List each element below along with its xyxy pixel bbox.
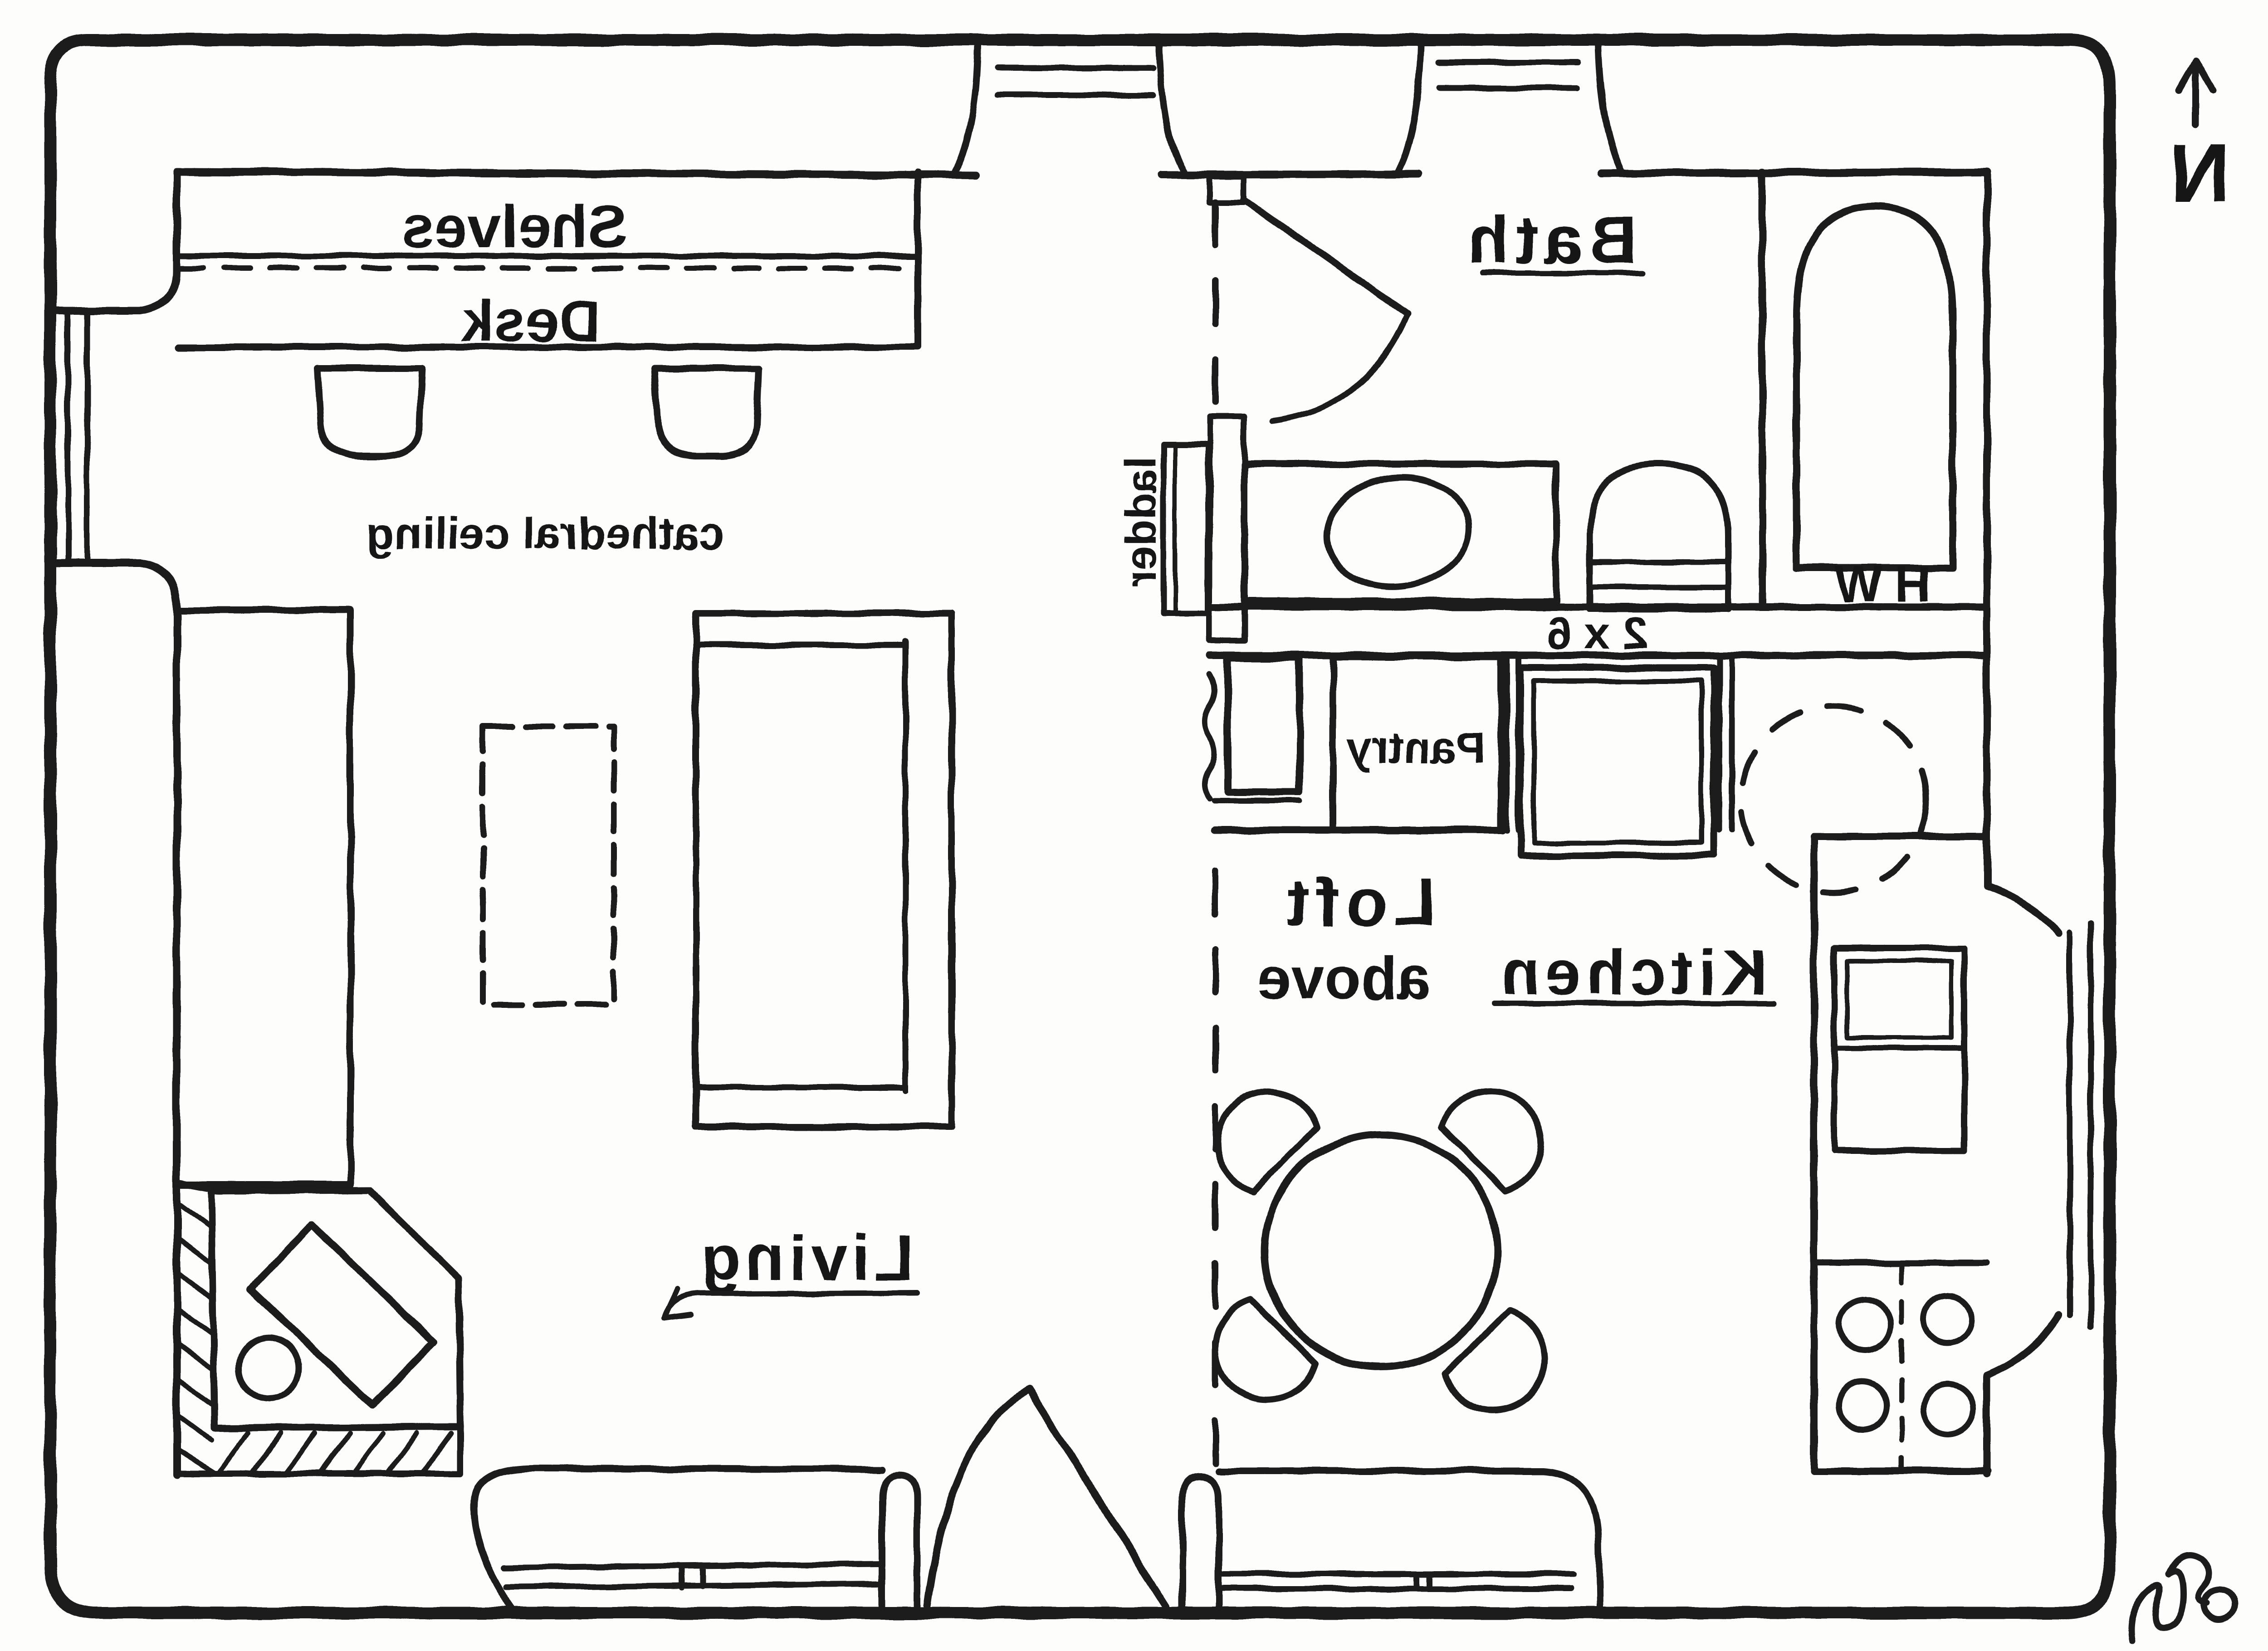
svg-text:N: N (2170, 127, 2230, 220)
svg-text:Kitchen: Kitchen (1496, 937, 1767, 1008)
svg-text:Pantry: Pantry (1347, 723, 1485, 772)
svg-text:Living: Living (697, 1222, 914, 1294)
svg-text:Bath: Bath (1461, 201, 1637, 278)
svg-text:2 x 6: 2 x 6 (1547, 608, 1648, 659)
svg-text:Loft: Loft (1280, 865, 1435, 940)
svg-text:Shelves: Shelves (401, 193, 628, 260)
svg-text:Desk: Desk (461, 289, 601, 354)
svg-text:cathedral ceiling: cathedral ceiling (366, 508, 724, 559)
svg-text:ladder: ladder (1117, 456, 1165, 587)
svg-text:above: above (1257, 945, 1431, 1011)
